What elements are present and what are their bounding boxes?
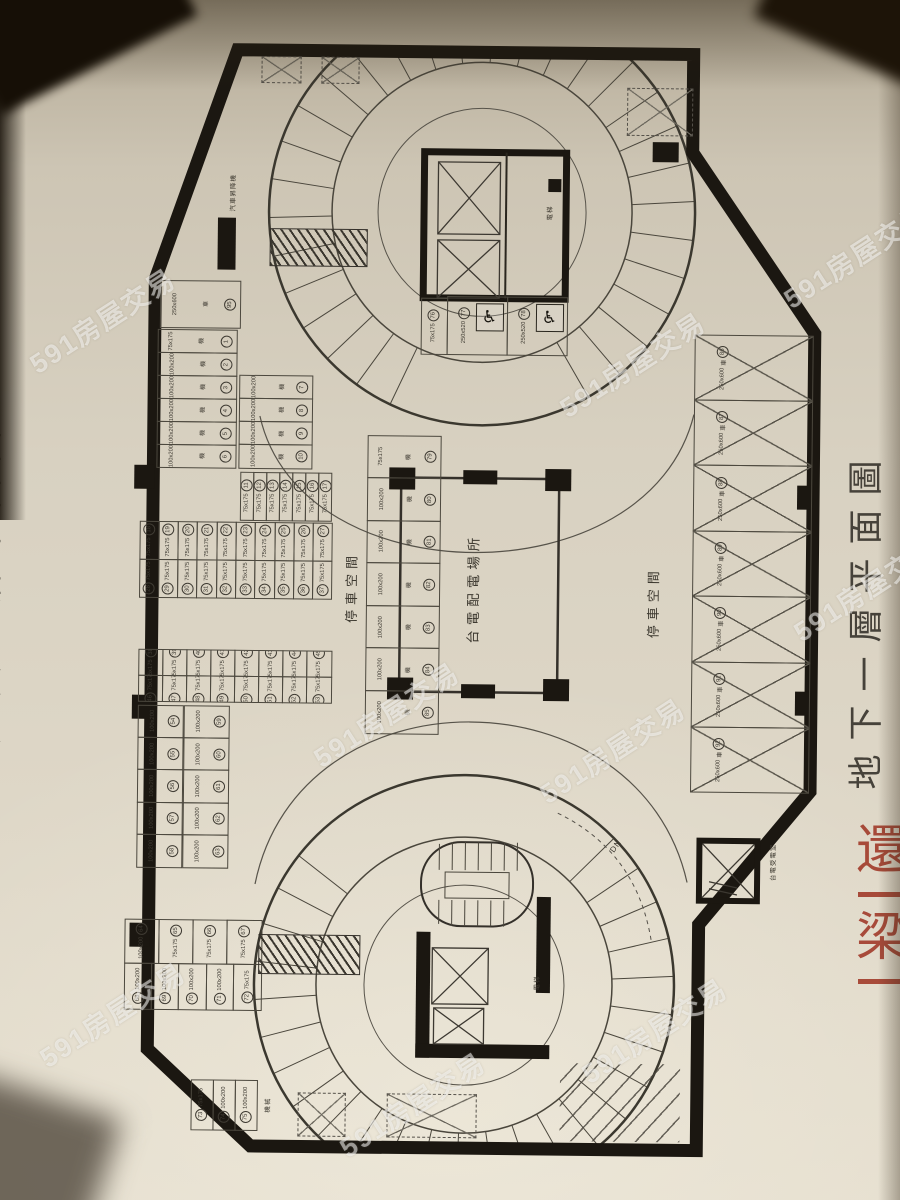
parking-group-cluster1: 100x2006475x1756575x1756675x17567	[124, 919, 261, 964]
handicap-stall-78: 250x52078 ♿	[507, 297, 568, 356]
car-stall: 250x600車89	[692, 530, 812, 598]
parking-stall: 75x17541	[210, 649, 235, 676]
corner-hatch-area	[559, 1063, 680, 1142]
parking-stall: 3275x175	[216, 559, 237, 598]
ramp-entry-grille-top	[269, 228, 367, 267]
parking-group-pairs-left: 100x20054100x20055100x20056100x20057100x…	[136, 705, 184, 867]
parking-stall: 4775x175	[162, 674, 187, 701]
car-stall: 250x600車91	[690, 661, 810, 729]
parking-stall: 100x20064	[124, 918, 160, 963]
parking-stall: 4975x175	[210, 675, 235, 702]
parking-stall: 75x175機1	[157, 328, 237, 353]
parking-stall: 75x17545	[307, 650, 332, 677]
elevator-label-bottom: 電梯	[529, 968, 543, 998]
parking-stall: 75x17540	[186, 649, 211, 676]
parking-stall: 75x17518	[139, 520, 160, 559]
ramp-entry-grille-bottom	[258, 934, 360, 975]
parking-stall: 100x200機5	[156, 420, 236, 445]
parking-stall: 100x20055	[137, 737, 183, 771]
parking-stall: 3475x175	[254, 559, 275, 598]
parking-stall: 100x200機2	[157, 351, 237, 376]
parking-group-right-cars: 250x600車86250x600車87250x600車88250x600車89…	[690, 335, 813, 794]
machine-area-label: 機械	[260, 1091, 274, 1119]
parking-stall: 2875x175	[139, 558, 160, 597]
red-seal-stamp: 還 梁	[856, 826, 900, 1000]
parking-stall: 75x17525	[274, 522, 295, 561]
parking-stall: 75x17521	[197, 521, 218, 560]
car-lift-label: 汽車昇降機	[225, 163, 240, 223]
parking-stall: 100x200機80	[366, 477, 440, 521]
parking-stall: 74100x200	[212, 1079, 236, 1130]
parking-stall: 100x200機6	[156, 443, 236, 468]
parking-stall: 75x17523	[235, 521, 256, 560]
parking-stall: 75x175機79	[367, 435, 441, 479]
parking-stall: 69100x200	[151, 962, 180, 1009]
parking-group-mid: 75x175機79100x200機80100x200機81100x200機821…	[365, 435, 442, 734]
parking-stall: 75x17524	[255, 521, 276, 560]
parking-stall: 75x17522	[216, 521, 237, 560]
parking-stall: 5375x175	[306, 676, 331, 703]
parking-stall: 75x17543	[258, 649, 283, 676]
wheelchair-icon: ♿	[475, 303, 503, 331]
parking-group-b: 100x200機7100x200機8100x200機9100x200機10	[238, 375, 313, 469]
adjacent-page-title-partial: 屋突二層平面圖	[0, 360, 6, 800]
parking-group-bottom: 7375x17574100x20075100x200	[190, 1079, 257, 1130]
parking-stall: 3675x175	[293, 560, 314, 599]
parking-stall: 75x17519	[158, 520, 179, 559]
parking-group-grid1-bottom: 2875x1752975x1753075x1753175x1753275x175…	[139, 559, 332, 599]
parking-stall: 75x17542	[234, 649, 259, 676]
parking-stall: 75x17539	[162, 648, 187, 675]
floor-plan-photo: 250x600 車 95 75x175機1100x200機2100x200機31…	[0, 0, 900, 1200]
parking-group-cluster2: 68100x20069100x20070100x20071100x2007275…	[124, 963, 261, 1010]
taipower-room-label: 台電受電室	[765, 835, 780, 889]
car-stall: 250x600車88	[692, 465, 812, 533]
floor-plan-drawing: 250x600 車 95 75x175機1100x200機2100x200機31…	[0, 0, 900, 1200]
parking-stall: 70100x200	[178, 963, 207, 1010]
parking-stall: 75x17527	[313, 522, 334, 561]
vent-shaft-box	[386, 1093, 476, 1138]
parking-stall-95: 250x600 車 95	[160, 280, 240, 328]
parking-stall: 100x200機85	[364, 690, 438, 734]
elevator-label-top: 電梯	[542, 198, 556, 228]
parking-stall: 100x20061	[182, 770, 228, 804]
parking-stall: 100x200機7	[239, 374, 313, 399]
parking-stall: 100x20063	[182, 834, 228, 868]
parking-group-left-a: 75x175機1100x200機2100x200機3100x200機4100x2…	[156, 329, 237, 468]
parking-stall: 2975x175	[158, 558, 179, 597]
stall-prefix: 車	[201, 301, 210, 307]
drive-lane-lower	[255, 720, 689, 889]
parking-stall: 3375x175	[235, 559, 256, 598]
bottom-core	[415, 842, 551, 1059]
vent-shaft-box	[261, 56, 301, 83]
wheelchair-icon: ♿	[535, 303, 563, 331]
parking-stall: 75x17520	[178, 521, 199, 560]
parking-stall: 68100x200	[123, 962, 152, 1009]
car-stall: 250x600車90	[691, 596, 811, 664]
dashed-path	[556, 813, 652, 942]
parking-stall: 71100x200	[205, 963, 234, 1010]
parking-stall-76: 75x17576	[421, 298, 448, 354]
parking-stall: 4675x175	[137, 674, 162, 701]
parking-group-pairs-right: 100x20059100x20060100x20061100x20062100x…	[182, 705, 230, 867]
stall-dim: 250x600	[172, 292, 178, 314]
seal-char-top: 還	[856, 826, 900, 878]
parking-stall: 75x17567	[226, 919, 262, 964]
parking-area-label-right: 停車空間	[643, 547, 660, 657]
seal-bar	[858, 979, 900, 984]
parking-group-c: 75x1751175x1751275x1751375x1751475x17515…	[240, 472, 332, 521]
parking-stall: 100x20060	[183, 737, 229, 771]
parking-stall: 100x200機9	[238, 421, 312, 446]
parking-stall: 100x200機82	[365, 562, 439, 606]
parking-stall: 75x17544	[282, 650, 307, 677]
stall-number: 95	[225, 298, 237, 310]
parking-stall: 75x17565	[158, 918, 194, 963]
parking-stall: 4875x175	[186, 675, 211, 702]
parking-area-label-left: 停車空間	[342, 532, 359, 642]
parking-stall: 75x17566	[192, 919, 228, 964]
page-title: 地下一層平面圖	[841, 383, 885, 853]
power-room-label: 台電配電場所	[463, 518, 480, 658]
parking-stall: 100x200機3	[157, 374, 237, 399]
car-stall: 250x600車92	[689, 727, 809, 795]
parking-stall: 100x20057	[136, 801, 182, 835]
parking-stall: 3575x175	[274, 560, 295, 599]
parking-stall: 100x20058	[136, 834, 182, 868]
parking-stall: 100x200機83	[365, 605, 439, 649]
seal-char-bottom: 梁	[856, 913, 900, 965]
parking-stall: 100x20056	[136, 769, 182, 803]
parking-stall: 75x17526	[293, 522, 314, 561]
parking-stall: 100x20062	[182, 802, 228, 836]
parking-stall: 75100x200	[234, 1079, 258, 1130]
parking-stall: 100x200機81	[366, 520, 440, 564]
parking-group-grid1-top: 75x1751875x1751975x1752075x1752175x17522…	[139, 521, 332, 561]
parking-stall: 75x17538	[138, 648, 163, 675]
parking-stall: 3075x175	[177, 559, 198, 598]
vent-shaft-box	[297, 1092, 345, 1137]
seal-bar	[858, 892, 900, 897]
handicap-stall-77: 250x52077 ♿	[447, 296, 508, 355]
parking-stall: 5075x175	[234, 675, 259, 702]
parking-stall: 100x200機10	[238, 444, 312, 469]
parking-stall: 100x200機84	[365, 648, 439, 692]
parking-group-grid2-top: 75x1753875x1753975x1754075x1754175x17542…	[138, 649, 331, 677]
parking-stall: 5175x175	[258, 675, 283, 702]
car-stall: 250x600車87	[693, 399, 813, 467]
parking-stall: 3175x175	[196, 559, 217, 598]
parking-stall: 3775x175	[312, 560, 333, 599]
parking-stall: 100x200機8	[238, 398, 312, 423]
vent-shaft-box	[627, 88, 693, 137]
parking-stall: 100x20059	[183, 705, 229, 739]
car-stall: 250x600車86	[694, 334, 814, 402]
parking-stall: 100x20054	[137, 704, 183, 738]
vent-shaft-box	[321, 57, 359, 84]
parking-stall: 100x200機4	[156, 397, 236, 422]
parking-stall: 7375x175	[190, 1079, 214, 1130]
parking-group-grid2-bottom: 4675x1754775x1754875x1754975x1755075x175…	[138, 675, 331, 703]
parking-stall: 75x17517	[318, 472, 333, 521]
parking-stall: 5275x175	[282, 676, 307, 703]
